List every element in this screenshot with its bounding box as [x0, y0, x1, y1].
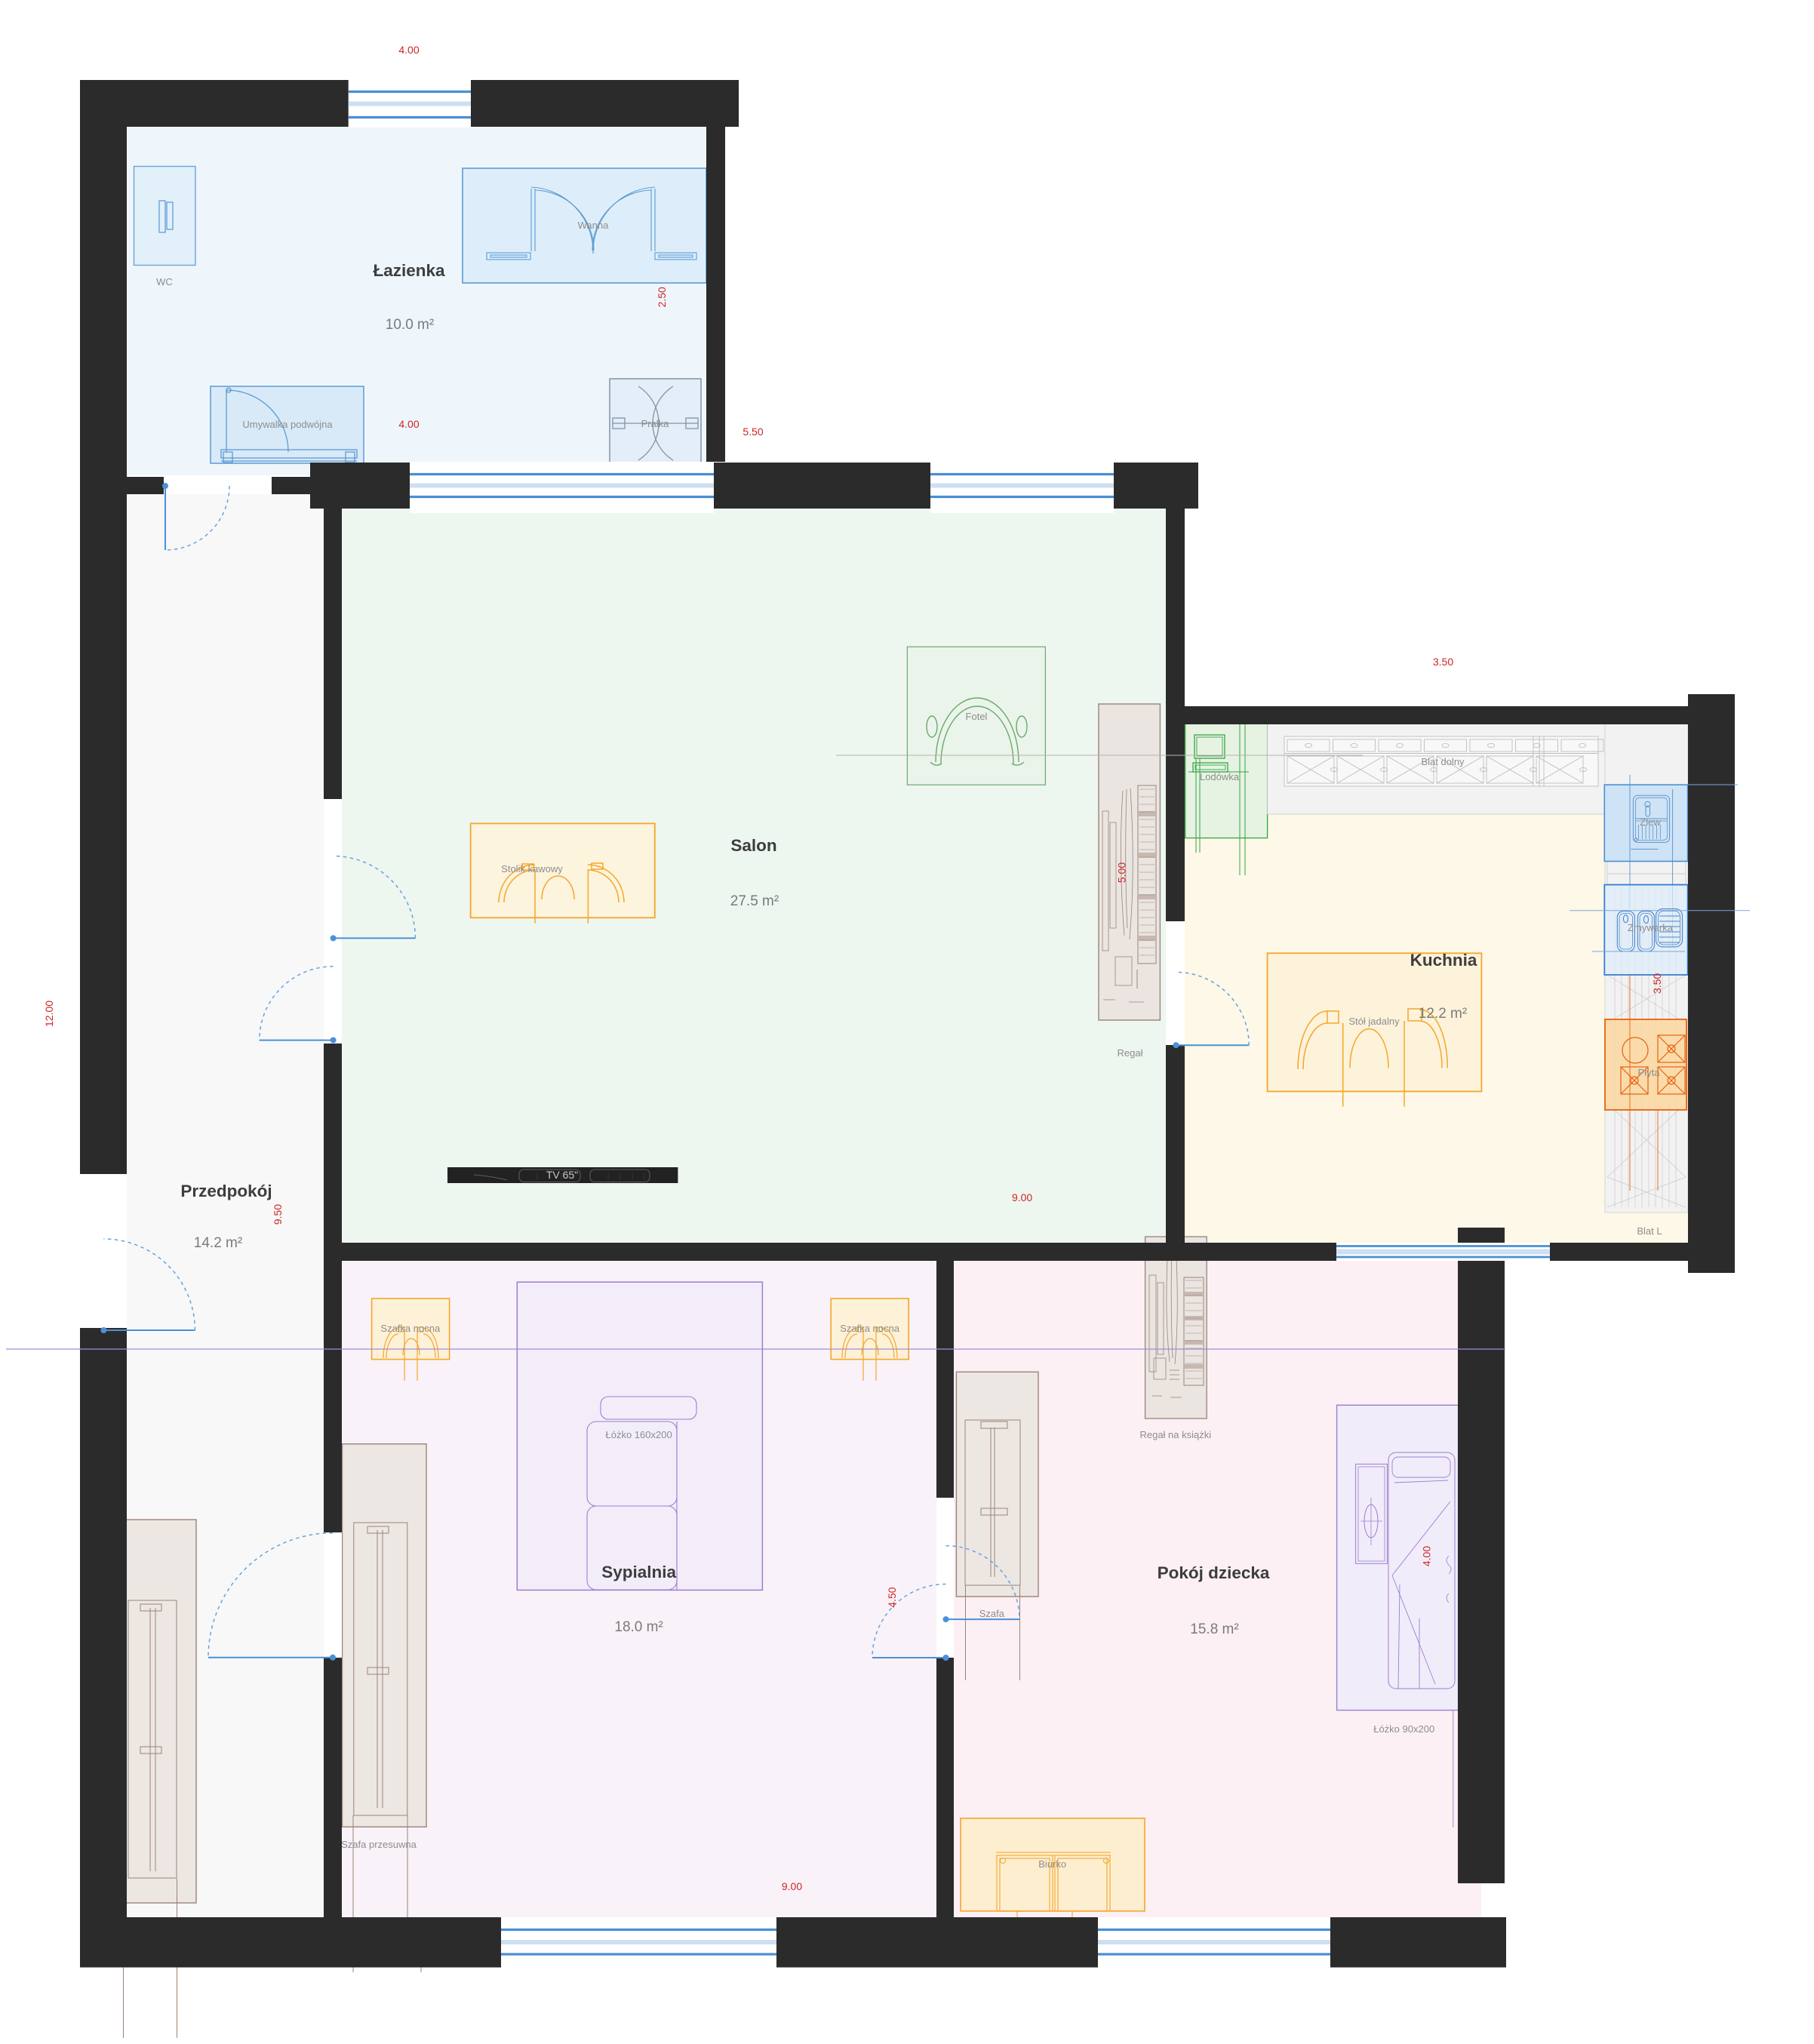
svg-text:Lodówka: Lodówka: [1200, 771, 1240, 782]
svg-text:Zmywarka: Zmywarka: [1628, 922, 1674, 933]
svg-text:Zlew: Zlew: [1640, 816, 1661, 828]
svg-text:9.00: 9.00: [782, 1880, 802, 1892]
svg-text:WC: WC: [156, 276, 173, 287]
svg-text:Szafa przesuwna: Szafa przesuwna: [341, 1839, 417, 1850]
svg-text:Szafka nocna: Szafka nocna: [380, 1323, 441, 1334]
svg-text:Blat dolny: Blat dolny: [1421, 756, 1465, 767]
svg-text:4.50: 4.50: [886, 1587, 898, 1607]
svg-text:5.00: 5.00: [1115, 862, 1127, 883]
svg-text:Łóżko 90x200: Łóżko 90x200: [1373, 1723, 1434, 1735]
svg-text:2.50: 2.50: [656, 287, 668, 307]
svg-text:9.00: 9.00: [1012, 1191, 1032, 1203]
svg-text:Wanna: Wanna: [578, 220, 609, 231]
svg-text:12.2 m²: 12.2 m²: [1419, 1006, 1467, 1022]
svg-text:Stolik kawowy: Stolik kawowy: [501, 863, 563, 874]
svg-text:4.00: 4.00: [398, 44, 419, 56]
svg-text:Blat L: Blat L: [1637, 1225, 1662, 1237]
svg-text:9.50: 9.50: [272, 1204, 284, 1225]
svg-text:4.00: 4.00: [1421, 1546, 1433, 1566]
svg-text:14.2 m²: 14.2 m²: [194, 1235, 242, 1251]
svg-text:Przedpokój: Przedpokój: [180, 1182, 272, 1200]
svg-text:4.00: 4.00: [398, 418, 419, 430]
svg-text:Kuchnia: Kuchnia: [1410, 951, 1477, 970]
svg-text:Szafka nocna: Szafka nocna: [840, 1323, 900, 1334]
svg-text:Łóżko 160x200: Łóżko 160x200: [606, 1429, 672, 1440]
svg-text:12.00: 12.00: [43, 1000, 55, 1027]
svg-text:Płyta: Płyta: [1638, 1067, 1661, 1078]
svg-text:15.8 m²: 15.8 m²: [1190, 1621, 1238, 1637]
svg-text:Salon: Salon: [730, 836, 776, 855]
svg-text:Regał na książki: Regał na książki: [1139, 1429, 1211, 1440]
svg-text:Sypialnia: Sypialnia: [601, 1563, 676, 1581]
svg-text:27.5 m²: 27.5 m²: [730, 893, 779, 909]
svg-text:3.50: 3.50: [1433, 656, 1453, 668]
svg-text:10.0 m²: 10.0 m²: [386, 317, 434, 333]
svg-text:Fotel: Fotel: [966, 711, 988, 722]
svg-text:Pralka: Pralka: [641, 418, 670, 429]
svg-text:3.50: 3.50: [1651, 973, 1663, 994]
svg-text:18.0 m²: 18.0 m²: [614, 1619, 663, 1635]
svg-text:Szafa: Szafa: [979, 1608, 1005, 1619]
svg-text:Stół jadalny: Stół jadalny: [1348, 1016, 1400, 1027]
svg-text:Regał: Regał: [1118, 1047, 1143, 1059]
svg-text:Pokój dziecka: Pokój dziecka: [1158, 1563, 1270, 1582]
svg-text:5.50: 5.50: [743, 426, 763, 438]
svg-text:Umywalka podwójna: Umywalka podwójna: [242, 419, 333, 430]
svg-text:Biurko: Biurko: [1038, 1858, 1066, 1870]
svg-text:Łazienka: Łazienka: [373, 261, 445, 280]
svg-text:TV 65": TV 65": [546, 1169, 578, 1181]
